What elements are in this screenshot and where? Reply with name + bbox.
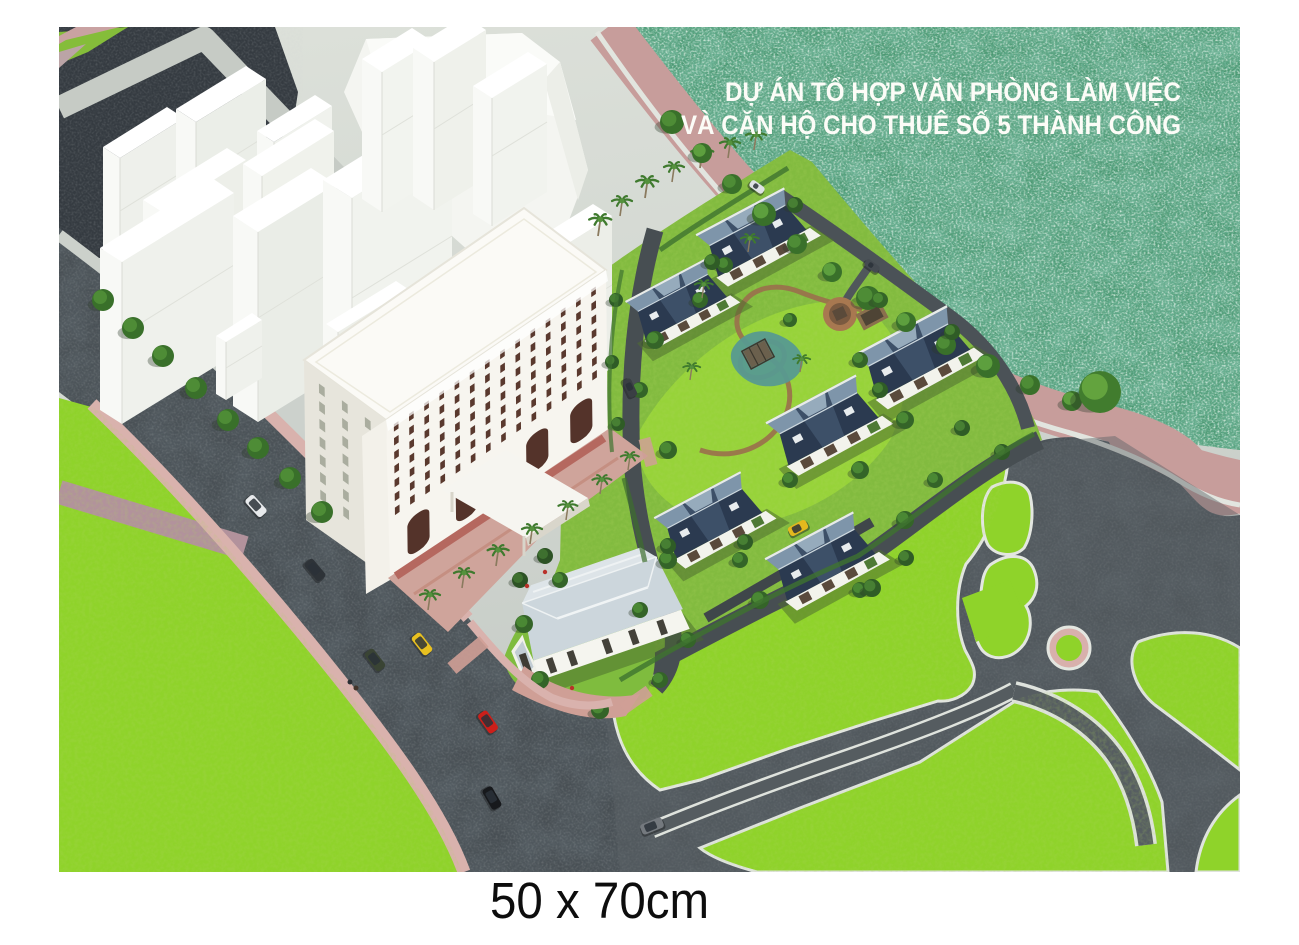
svg-text:DỰ ÁN TỔ HỢP VĂN PHÒNG LÀM VIỆ: DỰ ÁN TỔ HỢP VĂN PHÒNG LÀM VIỆC xyxy=(725,77,1181,107)
svg-text:VÀ CĂN HỘ CHO THUÊ SỐ 5 THÀNH: VÀ CĂN HỘ CHO THUÊ SỐ 5 THÀNH CÔNG xyxy=(681,110,1181,140)
svg-text:50 x 70cm: 50 x 70cm xyxy=(490,872,709,929)
